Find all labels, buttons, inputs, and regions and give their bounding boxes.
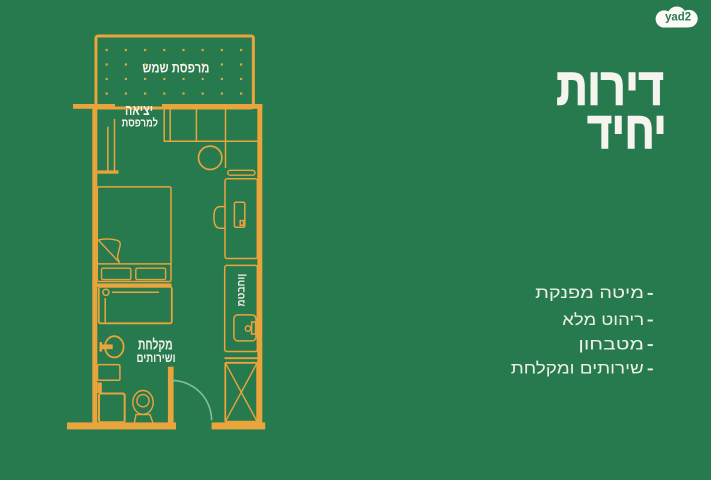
- svg-text:ןוחבטמ: ןוחבטמ: [236, 274, 247, 307]
- svg-text:מיטה מפנקת: מיטה מפנקת: [535, 284, 644, 302]
- svg-text:ושירותים: ושירותים: [136, 352, 175, 365]
- svg-text:שירותים ומקלחת: שירותים ומקלחת: [511, 359, 644, 377]
- svg-text:ריהוט מלא: ריהוט מלא: [562, 310, 644, 329]
- svg-text:מטבחון: מטבחון: [578, 335, 644, 353]
- svg-text:למרפסת: למרפסת: [122, 116, 158, 129]
- svg-text:מקלחת: מקלחת: [138, 337, 173, 353]
- svg-text:יציאה: יציאה: [125, 101, 153, 118]
- svg-text:yad2: yad2: [665, 9, 691, 23]
- svg-text:יחיד: יחיד: [587, 102, 666, 160]
- svg-text:מרפסת שמש: מרפסת שמש: [142, 59, 209, 76]
